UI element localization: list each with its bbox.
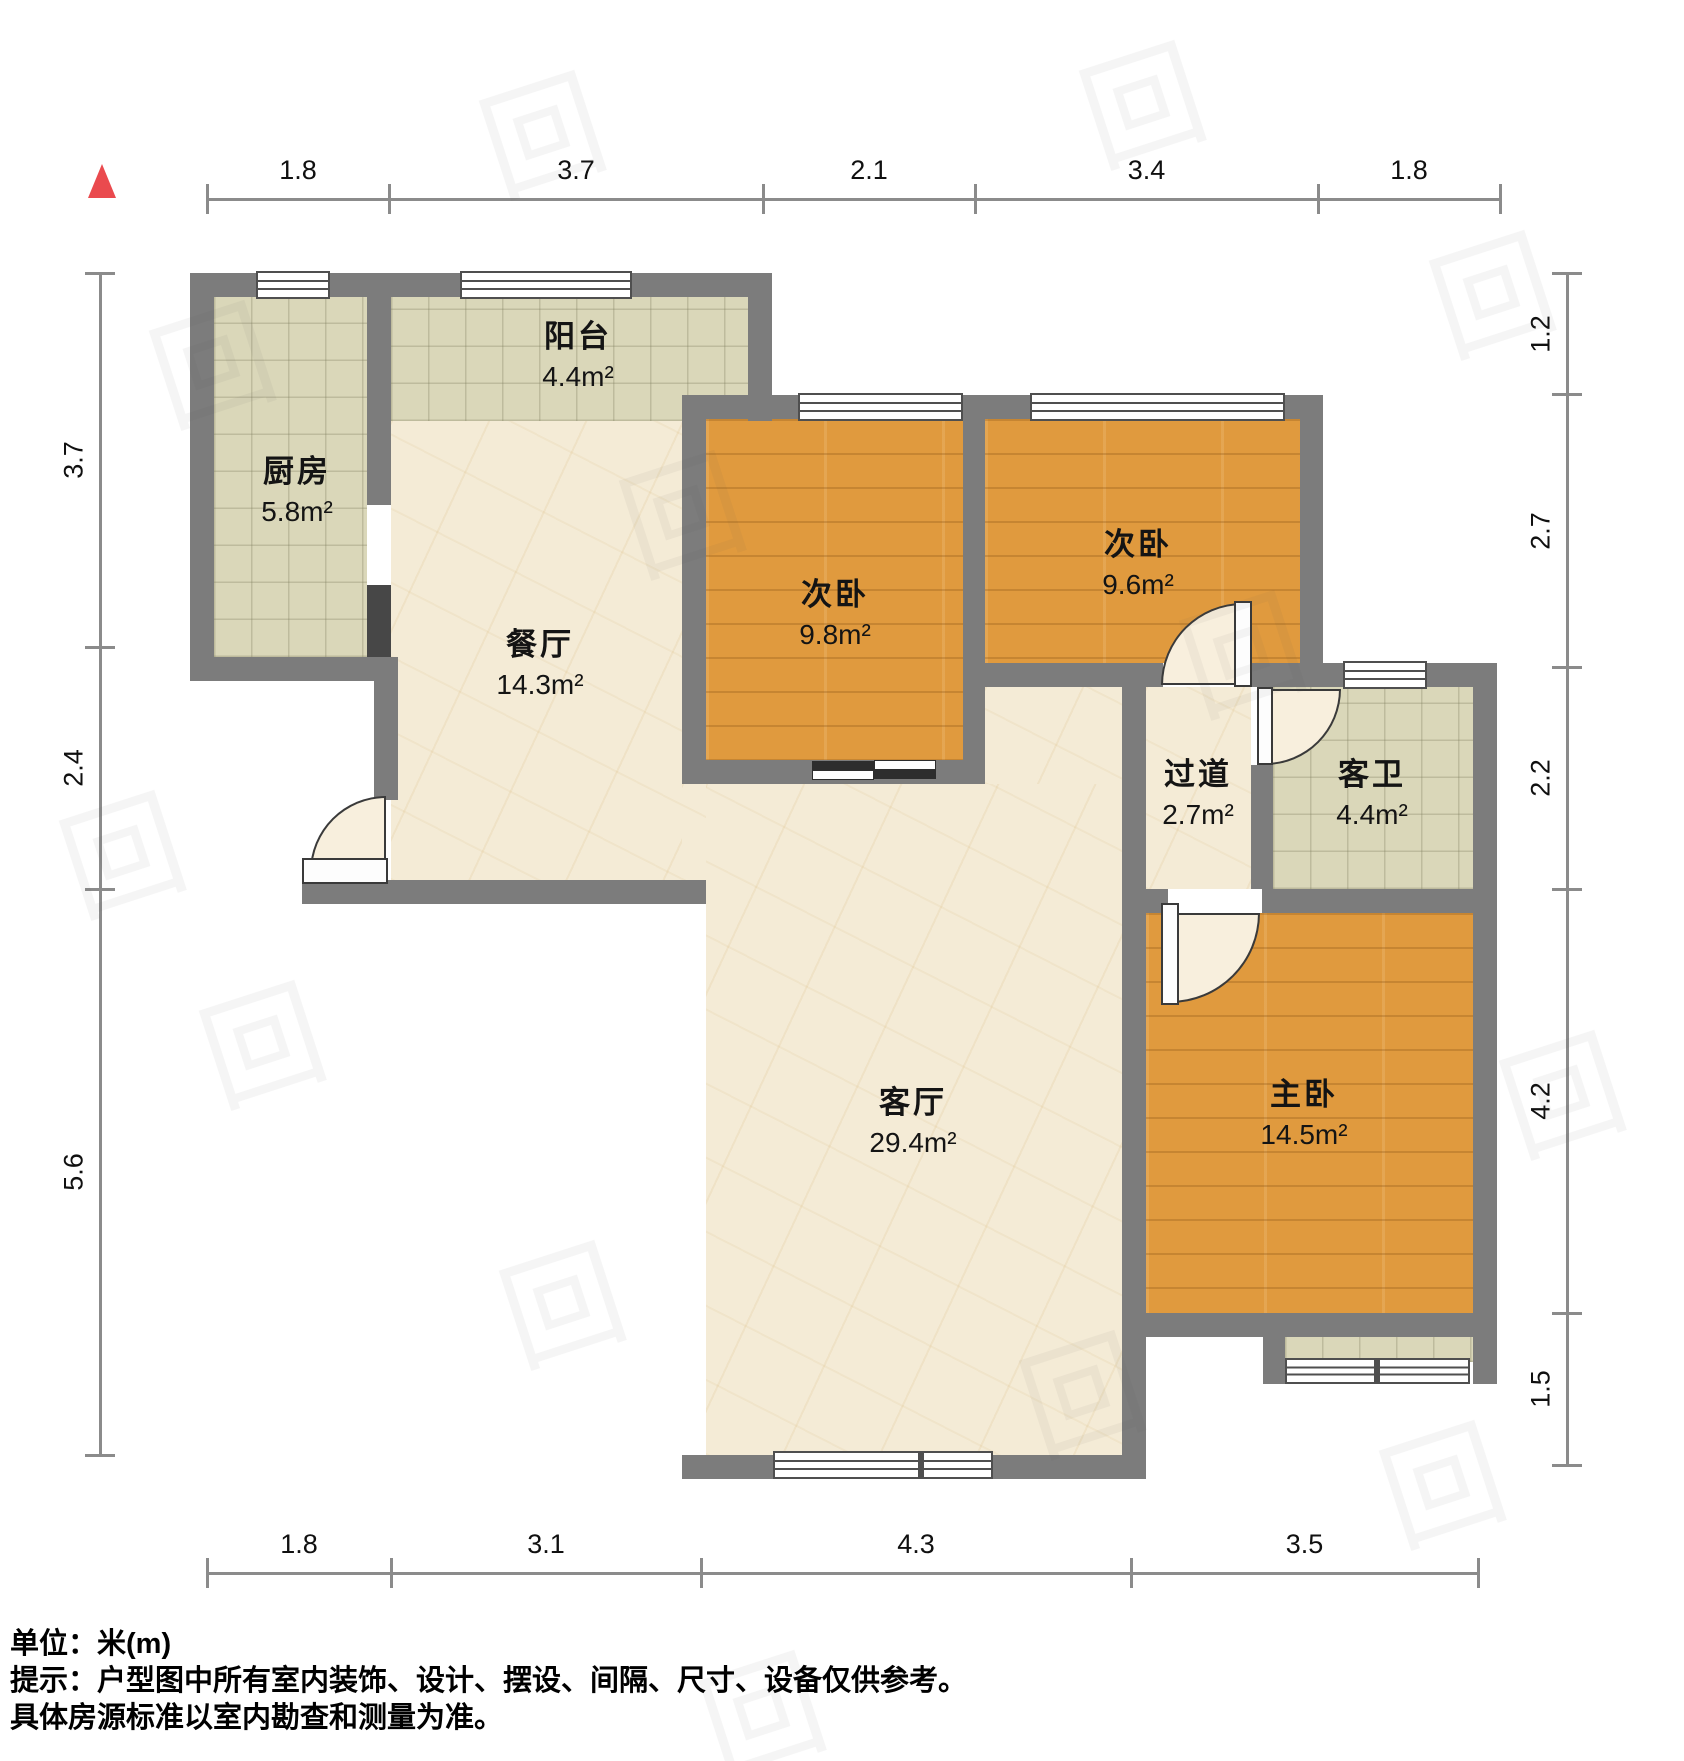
living-window bbox=[773, 1451, 993, 1479]
bedroom-a-sliding-door-panel bbox=[812, 770, 874, 780]
dimension-right-4: 1.5 bbox=[1526, 1370, 1557, 1408]
dimension-top-4: 1.8 bbox=[1390, 155, 1428, 186]
room-area: 5.8m² bbox=[261, 496, 333, 528]
dimension-right-1: 2.7 bbox=[1526, 512, 1557, 550]
dimension-bottom-2: 4.3 bbox=[897, 1529, 935, 1560]
corridor-floor bbox=[985, 687, 1122, 784]
room-label-living: 客厅29.4m² bbox=[869, 1077, 956, 1159]
wall bbox=[1251, 765, 1273, 889]
unit-note: 单位：米(m) bbox=[10, 1626, 967, 1663]
room-label-guest-bath: 客卫4.4m² bbox=[1336, 749, 1408, 831]
room-area: 9.6m² bbox=[1102, 569, 1174, 601]
ruler-tick bbox=[1477, 1558, 1480, 1588]
bedroom-a-sliding-door-panel bbox=[874, 760, 936, 770]
ruler-tick bbox=[700, 1558, 703, 1588]
room-name: 餐厅 bbox=[496, 619, 583, 664]
kitchen-window bbox=[256, 271, 330, 299]
ruler-tick bbox=[1552, 1464, 1582, 1467]
watermark-logo: 回 bbox=[1476, 986, 1644, 1189]
room-label-hallway: 过道2.7m² bbox=[1162, 749, 1234, 831]
dimension-bottom-0: 1.8 bbox=[280, 1529, 318, 1560]
room-name: 客卫 bbox=[1336, 749, 1408, 794]
wall bbox=[190, 273, 214, 681]
dimension-bottom-1: 3.1 bbox=[527, 1529, 565, 1560]
wall bbox=[1250, 663, 1343, 687]
room-name: 次卧 bbox=[799, 569, 871, 614]
guest-bath-window bbox=[1343, 661, 1427, 689]
room-name: 阳台 bbox=[542, 311, 614, 356]
ruler-right bbox=[1566, 273, 1569, 1465]
ruler-tick bbox=[1552, 272, 1582, 275]
room-area: 14.3m² bbox=[496, 669, 583, 701]
watermark-logo: 回 bbox=[476, 1196, 644, 1399]
ruler-tick bbox=[1317, 184, 1320, 214]
ruler-tick bbox=[390, 1558, 393, 1588]
ruler-tick bbox=[1552, 393, 1582, 396]
ruler-tick bbox=[388, 184, 391, 214]
footer-notes: 单位：米(m) 提示：户型图中所有室内装饰、设计、摆设、间隔、尺寸、设备仅供参考… bbox=[10, 1626, 967, 1737]
room-name: 厨房 bbox=[261, 446, 333, 491]
wall bbox=[190, 657, 398, 681]
dimension-top-2: 2.1 bbox=[850, 155, 888, 186]
bedroom-a-window bbox=[798, 393, 963, 421]
disclaimer-line-2: 具体房源标准以室内勘查和测量为准。 bbox=[10, 1700, 967, 1737]
ruler-tick bbox=[85, 646, 115, 649]
room-label-balcony: 阳台4.4m² bbox=[542, 311, 614, 393]
wall bbox=[1262, 889, 1497, 913]
ruler-tick bbox=[85, 1454, 115, 1457]
north-marker-icon bbox=[88, 164, 116, 198]
ruler-tick bbox=[1499, 184, 1502, 214]
wall bbox=[963, 663, 1163, 687]
room-area: 4.4m² bbox=[542, 361, 614, 393]
dimension-top-0: 1.8 bbox=[279, 155, 317, 186]
balcony-window bbox=[460, 271, 632, 299]
dimension-bottom-3: 3.5 bbox=[1286, 1529, 1324, 1560]
entry-door-leaf bbox=[302, 858, 388, 884]
living-window-divider bbox=[918, 1453, 924, 1477]
ruler-tick bbox=[85, 888, 115, 891]
ruler-tick bbox=[1552, 888, 1582, 891]
dimension-left-2: 5.6 bbox=[59, 1153, 90, 1191]
ruler-left bbox=[99, 273, 102, 1455]
wall bbox=[993, 1455, 1146, 1479]
wall bbox=[1122, 687, 1146, 1479]
dimension-right-0: 1.2 bbox=[1526, 315, 1557, 353]
dimension-left-1: 2.4 bbox=[59, 749, 90, 787]
wall bbox=[1473, 663, 1497, 1384]
guest-bath-door-leaf bbox=[1257, 687, 1273, 765]
room-area: 9.8m² bbox=[799, 619, 871, 651]
room-name: 过道 bbox=[1162, 749, 1234, 794]
wall bbox=[367, 297, 391, 505]
bedroom-a-sliding-door-panel bbox=[874, 770, 936, 779]
room-label-kitchen: 厨房5.8m² bbox=[261, 446, 333, 528]
room-area: 29.4m² bbox=[869, 1127, 956, 1159]
wall bbox=[1427, 663, 1473, 687]
ruler-tick bbox=[206, 184, 209, 214]
wall bbox=[1263, 1337, 1285, 1384]
watermark-logo: 回 bbox=[1356, 1376, 1524, 1579]
dimension-top-1: 3.7 bbox=[557, 155, 595, 186]
ruler-tick bbox=[974, 184, 977, 214]
wall bbox=[1122, 1313, 1497, 1337]
ruler-tick bbox=[762, 184, 765, 214]
room-label-dining: 餐厅14.3m² bbox=[496, 619, 583, 701]
ruler-bottom bbox=[207, 1572, 1478, 1575]
dimension-right-2: 2.2 bbox=[1526, 759, 1557, 797]
disclaimer-line-1: 提示：户型图中所有室内装饰、设计、摆设、间隔、尺寸、设备仅供参考。 bbox=[10, 1663, 967, 1700]
ruler-tick bbox=[1552, 1312, 1582, 1315]
wall bbox=[374, 657, 398, 800]
bedroom-a-sliding-door-panel bbox=[812, 761, 874, 770]
wall bbox=[682, 1455, 773, 1479]
room-area: 4.4m² bbox=[1336, 799, 1408, 831]
room-label-bedroom-a: 次卧9.8m² bbox=[799, 569, 871, 651]
wall bbox=[682, 419, 706, 784]
watermark-logo: 回 bbox=[1406, 186, 1574, 389]
room-area: 14.5m² bbox=[1260, 1119, 1347, 1151]
dimension-left-0: 3.7 bbox=[59, 441, 90, 479]
dimension-top-3: 3.4 bbox=[1128, 155, 1166, 186]
floor-plan-canvas: 阳台4.4m²厨房5.8m²餐厅14.3m²次卧9.8m²次卧9.6m²过道2.… bbox=[0, 0, 1684, 1761]
room-label-bedroom-b: 次卧9.6m² bbox=[1102, 519, 1174, 601]
dimension-right-3: 4.2 bbox=[1526, 1082, 1557, 1120]
room-name: 次卧 bbox=[1102, 519, 1174, 564]
master-door-leaf bbox=[1161, 903, 1179, 1005]
wall bbox=[367, 585, 391, 657]
watermark-logo: 回 bbox=[176, 936, 344, 1139]
ruler-tick bbox=[85, 272, 115, 275]
wall bbox=[963, 395, 985, 784]
bay-window-divider bbox=[1374, 1360, 1380, 1382]
ruler-top bbox=[207, 198, 1500, 201]
bedroom-b-door-leaf bbox=[1234, 601, 1252, 687]
ruler-tick bbox=[1130, 1558, 1133, 1588]
dining-living-connector-floor bbox=[682, 784, 706, 880]
ruler-tick bbox=[1552, 666, 1582, 669]
wall bbox=[1300, 395, 1323, 687]
room-area: 2.7m² bbox=[1162, 799, 1234, 831]
bedroom-b-window bbox=[1030, 393, 1285, 421]
room-name: 主卧 bbox=[1260, 1069, 1347, 1114]
room-label-master: 主卧14.5m² bbox=[1260, 1069, 1347, 1151]
ruler-tick bbox=[206, 1558, 209, 1588]
room-name: 客厅 bbox=[869, 1077, 956, 1122]
